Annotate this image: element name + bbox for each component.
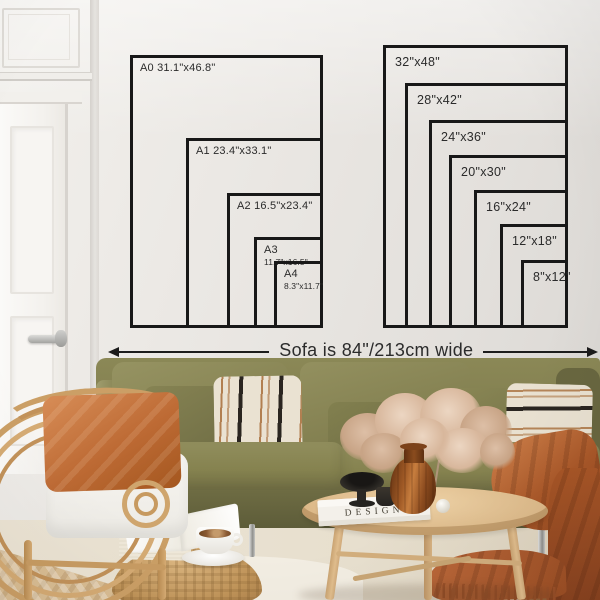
size-frame-label: 12"x18" (512, 234, 557, 248)
vase-lip (400, 443, 427, 450)
black-bowl-foot (349, 500, 375, 507)
decor-sphere (436, 499, 450, 513)
amber-glass-vase (390, 458, 436, 514)
size-frame-label: 24"x36" (441, 130, 486, 144)
sofa-leg-left (249, 524, 255, 557)
size-frame-label: 16"x24" (486, 200, 531, 214)
size-frame-8x12: 8"x12" (521, 260, 568, 328)
size-frame-label: 28"x42" (417, 93, 462, 107)
chair-leg-left (24, 540, 32, 600)
size-guide-mockup: A0 31.1"x46.8"A1 23.4"x33.1"A2 16.5"x23.… (0, 0, 600, 600)
dried-flowers (340, 388, 518, 476)
size-frame-label: 32"x48" (395, 55, 440, 69)
arrow-left-icon (108, 347, 119, 357)
arrow-line-right (483, 351, 587, 353)
terracotta-pillow (42, 392, 181, 493)
arrow-line-left (119, 351, 269, 353)
chair-arm-curl-inner (134, 492, 158, 516)
chair-leg-right (158, 548, 166, 600)
size-frame-label: 20"x30" (461, 165, 506, 179)
size-frame-label: 8"x12" (533, 270, 571, 284)
arrow-right-icon (587, 347, 598, 357)
coffee-surface (199, 529, 231, 538)
dried-flower-blob (480, 433, 515, 471)
